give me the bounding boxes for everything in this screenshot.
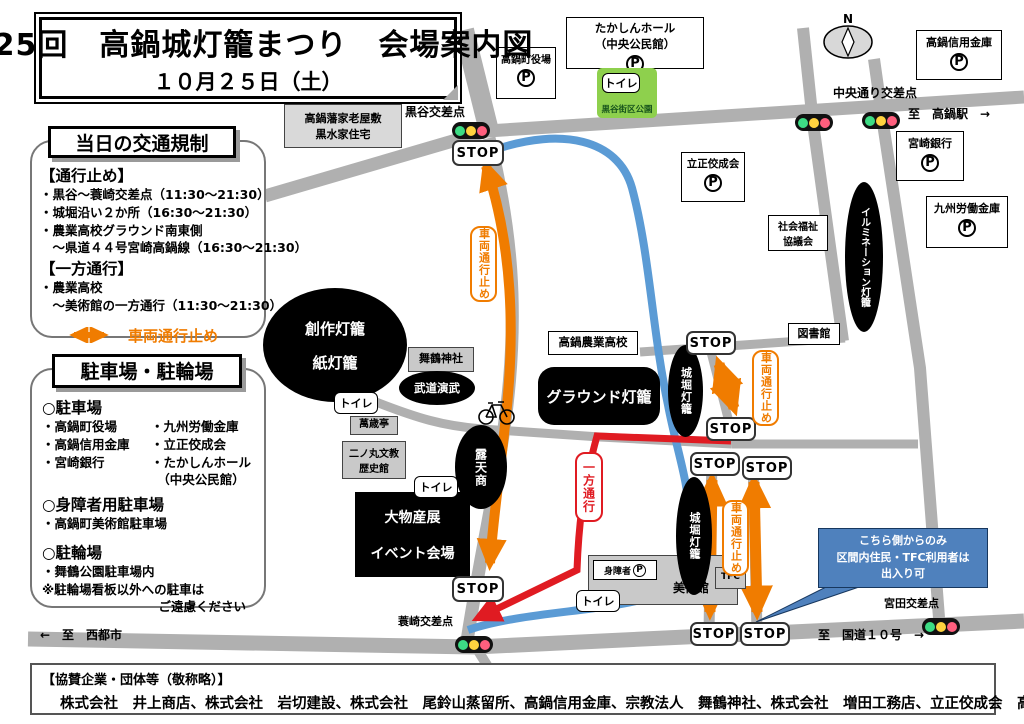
rissho-name: 立正佼成会	[682, 156, 744, 171]
stop-sign: STOP	[686, 331, 736, 355]
rissho-box: 立正佼成会 P	[681, 152, 745, 202]
festival-venue-map: 第25回 高鍋城灯籠まつり 会場案内図 １０月２５日（土） 当日の交通規制 【通…	[0, 0, 1024, 724]
to-route10-label: 至 国道１０号 →	[818, 626, 924, 643]
disabled-label: 身障者	[604, 564, 631, 577]
agricultural-hs-box: 高鍋農業高校	[548, 331, 638, 355]
toilet-sign: トイレ	[334, 392, 378, 414]
ninomaru-museum-box: 二ノ丸文教 歴史館	[342, 441, 406, 479]
callout-line: 出入り可	[881, 566, 925, 583]
stop-sign: STOP	[740, 622, 790, 646]
vehicle-closed-badge: 車両通行止め	[752, 350, 779, 426]
sponsors-list: 株式会社 井上商店、株式会社 岩切建設、株式会社 尾鈴山蒸留所、高鍋信用金庫、宗…	[42, 692, 984, 713]
miyazaki-bank-name: 宮崎銀行	[897, 135, 963, 151]
library-box: 図書館	[788, 323, 840, 345]
miyata-intersection-label: 宮田交差点	[884, 595, 939, 611]
parking-icon: P	[958, 219, 976, 237]
car-parking-item: ・高鍋信用金庫	[42, 436, 151, 454]
vehicle-closed-text: 車両通行止め	[758, 352, 774, 424]
traffic-light	[795, 114, 833, 131]
illumination-lantern-label: イルミネーション灯籠	[857, 207, 872, 307]
kurotani-park-box: トイレ 黒谷街区公園	[597, 68, 657, 118]
parking-icon: P	[633, 564, 646, 577]
compass-icon	[824, 26, 872, 58]
toilet-sign: トイレ	[602, 73, 640, 93]
parking-note: ※駐輪場看板以外への駐車は	[42, 581, 260, 599]
to-takanabe-station-label: 至 高鍋駅 →	[908, 105, 990, 122]
car-parking-item: （中央公民館）	[151, 471, 260, 489]
shinkin-bank-box: 高鍋信用金庫 P	[916, 30, 1002, 80]
closed-item: ～県道４４号宮崎高鍋線（16:30～21:30）	[40, 239, 262, 257]
vehicle-closed-legend-icon	[60, 327, 118, 343]
vehicle-closed-text: 車両通行止め	[728, 502, 744, 574]
jobori-lantern-venue: 城堀灯籠	[668, 345, 703, 437]
chuo-dori-intersection-label: 中央通り交差点	[833, 84, 917, 101]
vehicle-closed-badge: 車両通行止め	[470, 226, 497, 302]
traffic-light	[455, 636, 493, 653]
closed-section-header: 【通行止め】	[40, 164, 262, 186]
illumination-lantern-venue: イルミネーション灯籠	[845, 182, 883, 332]
takashin-hall-name: たかしんホール	[567, 20, 703, 36]
stop-sign: STOP	[452, 576, 504, 602]
street-vendors-label: 露天商	[473, 448, 490, 487]
rokin-bank-name: 九州労働金庫	[927, 200, 1007, 216]
oneway-badge: 一方通行	[575, 452, 603, 522]
shakyo-name: 社会福祉	[769, 218, 827, 233]
bicycle-parking-header: ○駐輪場	[42, 541, 260, 563]
shakyo-name2: 協議会	[769, 233, 827, 248]
car-parking-item: ・九州労働金庫	[151, 418, 260, 436]
car-parking-header: ○駐車場	[42, 396, 260, 418]
sponsors-box: 【協賛企業・団体等（敬称略）】 株式会社 井上商店、株式会社 岩切建設、株式会社…	[30, 663, 996, 715]
callout-line: 区間内住民・TFC利用者は	[836, 550, 969, 567]
car-parking-item: ・宮崎銀行	[42, 454, 151, 472]
kurotani-park-name: 黒谷街区公園	[597, 103, 657, 115]
disabled-parking-sign: 身障者 P	[593, 560, 657, 580]
sosaku-lantern-venue: 創作灯籠 紙灯籠	[263, 288, 407, 402]
paper-lantern-label: 紙灯籠	[312, 352, 357, 373]
stop-sign: STOP	[706, 417, 756, 441]
callout-pointer	[756, 586, 862, 622]
bicycle-parking-item: ・舞鶴公園駐車場内	[42, 563, 260, 581]
traffic-light	[862, 112, 900, 129]
parking-icon: P	[704, 174, 722, 192]
oneway-item: ・農業高校	[40, 279, 262, 297]
disabled-parking-header: ○身障者用駐車場	[42, 493, 260, 515]
ground-lantern-venue: グラウンド灯籠	[538, 367, 660, 425]
title-box: 第25回 高鍋城灯籠まつり 会場案内図 １０月２５日（土）	[34, 12, 462, 104]
maizuru-shrine-box: 舞鶴神社	[408, 347, 474, 372]
vehicle-closed-legend-label: 車両通行止め	[128, 325, 218, 346]
kuroki-house-name: 高鍋藩家老屋敷	[285, 110, 401, 126]
parking-note: ご遠慮ください	[42, 598, 260, 616]
stop-sign: STOP	[690, 622, 738, 646]
parking-icon: P	[950, 53, 968, 71]
car-parking-item: ・立正佼成会	[151, 436, 260, 454]
disabled-parking-item: ・高鍋町美術館駐車場	[42, 515, 260, 533]
car-parking-item: ・たかしんホール	[151, 454, 260, 472]
parking-icon: P	[921, 154, 939, 172]
manzaitei-box: 萬歳亭	[350, 416, 398, 435]
callout-line: こちら側からのみ	[859, 533, 947, 550]
jobori-lantern-label: 城堀灯籠	[686, 512, 702, 560]
kurotani-intersection-label: 黒谷交差点	[405, 103, 465, 120]
takashin-hall-name2: （中央公民館）	[567, 36, 703, 52]
bussan-label: 大物産展	[385, 507, 441, 527]
toilet-sign: トイレ	[414, 476, 458, 498]
oneway-item: ～美術館の一方通行（11:30～21:30）	[40, 297, 262, 315]
toilet-sign: トイレ	[576, 590, 620, 612]
parking-panel-header: 駐車場・駐輪場	[52, 354, 242, 388]
vehicle-closed-text: 車両通行止め	[476, 228, 492, 300]
closed-item: ・城堀沿い２か所（16:30～21:30）	[40, 204, 262, 222]
ninomaru-name2: 歴史館	[343, 460, 405, 475]
traffic-panel-header: 当日の交通規制	[48, 126, 236, 158]
budo-demo-venue: 武道演武	[399, 371, 475, 405]
access-callout: こちら側からのみ 区間内住民・TFC利用者は 出入り可	[818, 528, 988, 588]
jobori-lantern-label: 城堀灯籠	[678, 367, 694, 415]
stop-sign: STOP	[452, 140, 504, 166]
kuroki-house-box: 高鍋藩家老屋敷 黒水家住宅	[284, 104, 402, 148]
minosaki-intersection-label: 蓑崎交差点	[398, 613, 453, 629]
page-fold-decoration	[443, 85, 458, 100]
takashin-hall-box: たかしんホール （中央公民館） P	[566, 17, 704, 69]
oneway-text: 一方通行	[581, 461, 598, 513]
page-title: 第25回 高鍋城灯籠まつり 会場案内図	[0, 20, 533, 64]
oneway-section-header: 【一方通行】	[40, 257, 262, 279]
ninomaru-name: 二ノ丸文教	[343, 445, 405, 460]
stop-sign: STOP	[690, 452, 740, 476]
car-parking-item: ・高鍋町役場	[42, 418, 151, 436]
to-saito-label: ← 至 西都市	[40, 626, 122, 643]
traffic-light	[452, 122, 490, 139]
closed-item: ・農業高校グラウンド南東側	[40, 222, 262, 240]
closed-item: ・黒谷～蓑崎交差点（11:30～21:30）	[40, 186, 262, 204]
kuroki-house-name2: 黒水家住宅	[285, 126, 401, 142]
stop-sign: STOP	[742, 456, 792, 480]
bussan-event-venue: 大物産展 イベント会場	[355, 492, 470, 577]
compass-north-label: N	[843, 12, 853, 26]
traffic-light	[922, 618, 960, 635]
miyazaki-bank-box: 宮崎銀行 P	[896, 131, 964, 181]
vehicle-closed-badge: 車両通行止め	[722, 500, 749, 576]
rokin-bank-box: 九州労働金庫 P	[926, 196, 1008, 248]
sosaku-lantern-label: 創作灯籠	[305, 318, 365, 339]
event-date: １０月２５日（土）	[154, 66, 343, 96]
shakyo-box: 社会福祉 協議会	[768, 215, 828, 251]
jobori-lantern-venue-2: 城堀灯籠	[676, 477, 712, 595]
event-site-label: イベント会場	[371, 543, 455, 563]
shinkin-bank-name: 高鍋信用金庫	[917, 34, 1001, 50]
sponsors-header: 【協賛企業・団体等（敬称略）】	[42, 669, 984, 688]
parking-icon: P	[517, 69, 535, 87]
